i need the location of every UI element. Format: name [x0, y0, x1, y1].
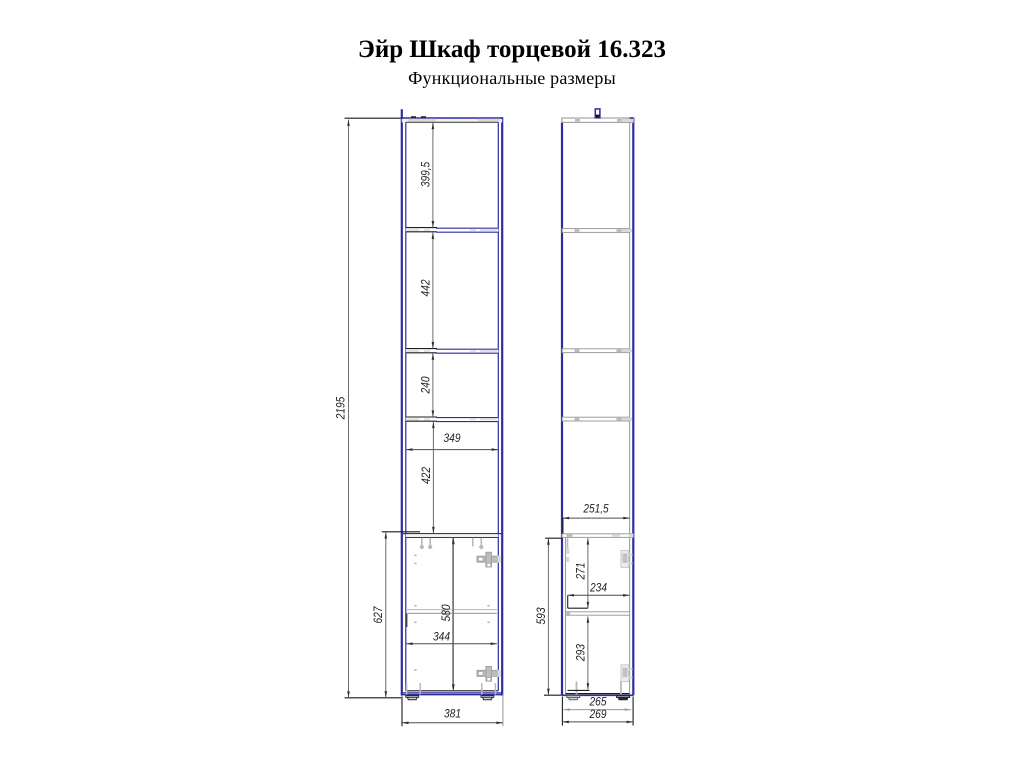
- svg-text:234: 234: [589, 583, 607, 595]
- svg-text:Функциональные размеры: Функциональные размеры: [408, 68, 616, 88]
- svg-text:271: 271: [575, 563, 587, 581]
- svg-text:Эйр Шкаф торцевой 16.323: Эйр Шкаф торцевой 16.323: [358, 36, 666, 63]
- svg-text:580: 580: [441, 604, 453, 622]
- svg-text:399,5: 399,5: [420, 161, 432, 187]
- svg-text:2195: 2195: [336, 396, 348, 420]
- svg-text:593: 593: [536, 607, 548, 625]
- svg-text:240: 240: [420, 376, 432, 394]
- svg-text:344: 344: [433, 632, 450, 644]
- svg-text:349: 349: [444, 433, 462, 445]
- svg-text:422: 422: [421, 466, 433, 484]
- svg-text:627: 627: [373, 606, 385, 624]
- svg-text:442: 442: [420, 279, 432, 297]
- svg-text:381: 381: [444, 708, 461, 720]
- svg-text:265: 265: [589, 697, 607, 709]
- svg-text:269: 269: [589, 709, 607, 721]
- svg-text:293: 293: [575, 644, 587, 662]
- svg-text:251,5: 251,5: [582, 504, 609, 516]
